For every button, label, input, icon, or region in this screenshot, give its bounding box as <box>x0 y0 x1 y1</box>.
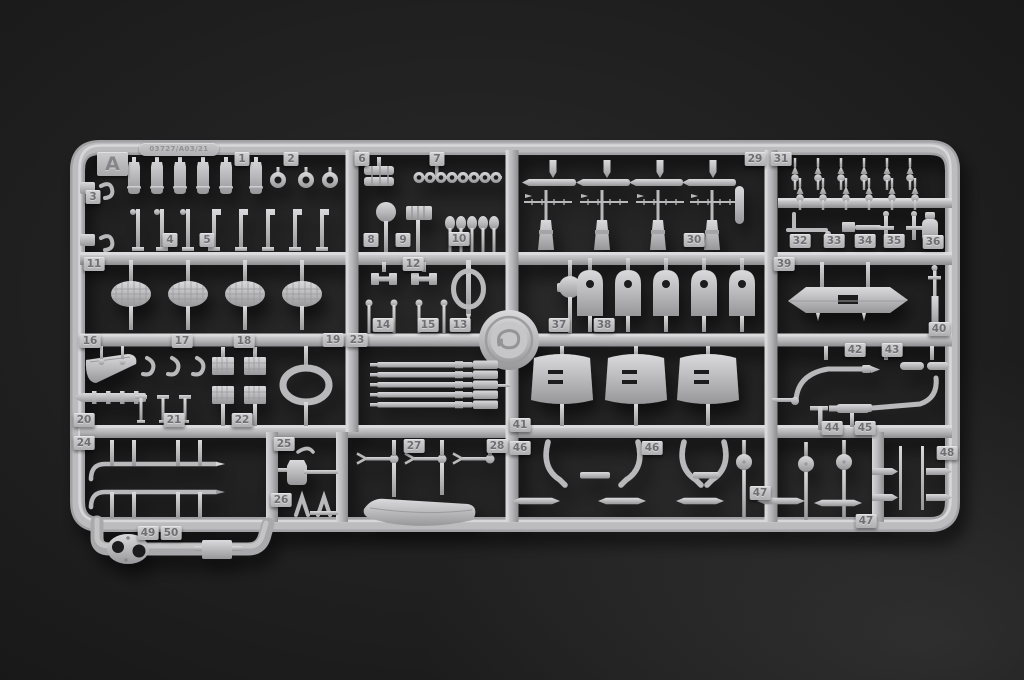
part-number-tag-2: 2 <box>284 152 299 166</box>
part-number-tag-43: 43 <box>882 343 903 357</box>
part-number-tag-37: 37 <box>549 318 570 332</box>
part-number-tag-16: 16 <box>80 334 101 348</box>
part-number-tag-15: 15 <box>418 318 439 332</box>
part-number-tag-49: 49 <box>138 526 159 540</box>
part-number-tag-17: 17 <box>172 334 193 348</box>
part-number-tag-48: 48 <box>937 446 958 460</box>
part-number-tag-36: 36 <box>923 235 944 249</box>
part-number-tag-40: 40 <box>929 322 950 336</box>
part-number-tag-47: 47 <box>750 486 771 500</box>
part-number-tag-19: 19 <box>323 333 344 347</box>
sprue-frame <box>78 146 953 550</box>
part-number-tag-42: 42 <box>845 343 866 357</box>
part-number-tag-1: 1 <box>235 152 250 166</box>
mold-number-embossing: 03727/A03/21 <box>139 143 219 156</box>
sprue-photo <box>0 0 1024 680</box>
part-number-tag-45: 45 <box>855 421 876 435</box>
part-number-tag-35: 35 <box>884 234 905 248</box>
part-number-tag-23: 23 <box>347 333 368 347</box>
part-number-tag-12: 12 <box>403 257 424 271</box>
part-number-tag-21: 21 <box>164 413 185 427</box>
part-number-tag-34: 34 <box>855 234 876 248</box>
part-number-tag-24: 24 <box>74 436 95 450</box>
part-number-tag-3: 3 <box>86 190 101 204</box>
part-number-tag-4: 4 <box>163 233 178 247</box>
part-number-tag-5: 5 <box>200 233 215 247</box>
part-number-tag-20: 20 <box>74 413 95 427</box>
part-number-tag-44: 44 <box>822 421 843 435</box>
part-number-tag-50: 50 <box>161 526 182 540</box>
part-number-tag-8: 8 <box>364 233 379 247</box>
part-number-tag-33: 33 <box>824 234 845 248</box>
part-number-tag-11: 11 <box>84 257 105 271</box>
part-number-tag-46: 46 <box>642 441 663 455</box>
part-number-tag-28: 28 <box>487 439 508 453</box>
part-number-tag-30: 30 <box>684 233 705 247</box>
part-number-tag-6: 6 <box>355 152 370 166</box>
part-number-tag-26: 26 <box>271 493 292 507</box>
part-number-tag-46: 46 <box>510 441 531 455</box>
part-number-tag-25: 25 <box>274 437 295 451</box>
part-number-tag-13: 13 <box>450 318 471 332</box>
part-number-tag-47: 47 <box>856 514 877 528</box>
part-number-tag-38: 38 <box>594 318 615 332</box>
part-number-tag-31: 31 <box>771 152 792 166</box>
part-number-tag-18: 18 <box>234 334 255 348</box>
part-number-tag-14: 14 <box>373 318 394 332</box>
photo-background: A 03727/A03/21 1267293134589103032333435… <box>0 0 1024 680</box>
part-number-tag-27: 27 <box>404 439 425 453</box>
part-number-tag-32: 32 <box>790 234 811 248</box>
part-number-tag-9: 9 <box>396 233 411 247</box>
part-number-tag-41: 41 <box>510 418 531 432</box>
part-number-tag-29: 29 <box>745 152 766 166</box>
part-number-tag-39: 39 <box>774 257 795 271</box>
part-number-tag-22: 22 <box>232 413 253 427</box>
part-number-tag-10: 10 <box>449 232 470 246</box>
sprue-letter-tag: A <box>97 152 128 176</box>
part-number-tag-7: 7 <box>430 152 445 166</box>
